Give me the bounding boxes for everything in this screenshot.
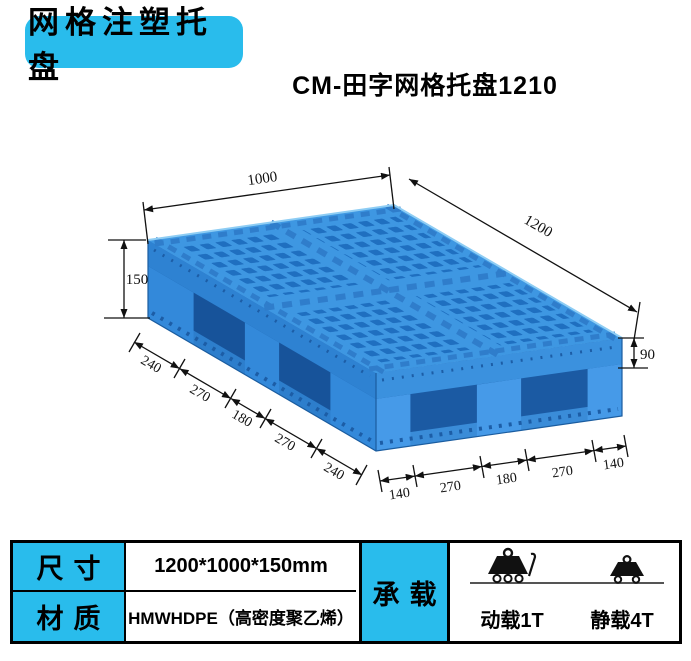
dim-bottom-4: 270 [551,464,574,482]
dim-bottom-5: 140 [602,456,625,474]
dim-1200-label: 1200 [521,212,555,241]
dynamic-load-icon [488,549,535,582]
spec-table: 尺寸 1200*1000*150mm 材质 HMWHDPE（高密度聚乙烯） 承载 [10,540,682,644]
load-label-cell: 承载 [362,543,450,641]
dim-bottom-2: 270 [439,479,462,497]
dynamic-load-label: 动载1T [462,604,562,633]
dim-90-label: 90 [640,347,655,363]
dim-150-label: 150 [126,272,149,288]
material-label-cell: 材质 [13,592,126,641]
size-label-cell: 尺寸 [13,543,126,592]
material-value-cell: HMWHDPE（高密度聚乙烯） [126,592,356,641]
static-load-icon [610,556,644,583]
static-load-label: 静载4T [572,604,672,633]
dim-1000-label: 1000 [246,169,278,189]
dim-bottom-3: 180 [495,471,518,489]
load-icons-cell: 动载1T 静载4T [450,543,679,641]
size-value-cell: 1200*1000*150mm [126,543,356,592]
page: 网格注塑托盘 CM-田字网格托盘1210 [0,0,691,661]
dim-bottom-1: 140 [388,486,411,504]
